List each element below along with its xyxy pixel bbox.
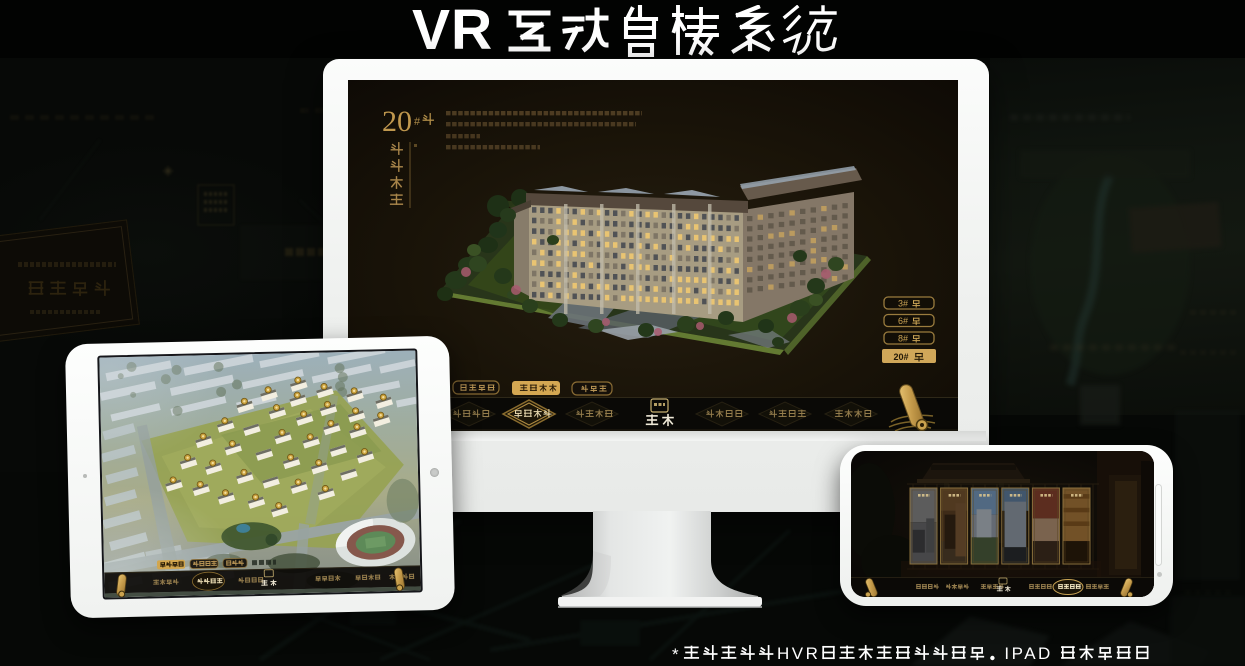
svg-text:3#: 3# [898,299,908,309]
svg-text:IPAD: IPAD [1004,644,1052,663]
svg-text:#: # [414,116,421,128]
svg-text:HVR: HVR [777,644,820,663]
svg-text:20#: 20# [893,352,908,362]
svg-text:8#: 8# [898,334,908,344]
svg-text:20: 20 [382,105,412,138]
svg-text:*: * [672,645,679,664]
svg-text:6#: 6# [898,316,908,326]
